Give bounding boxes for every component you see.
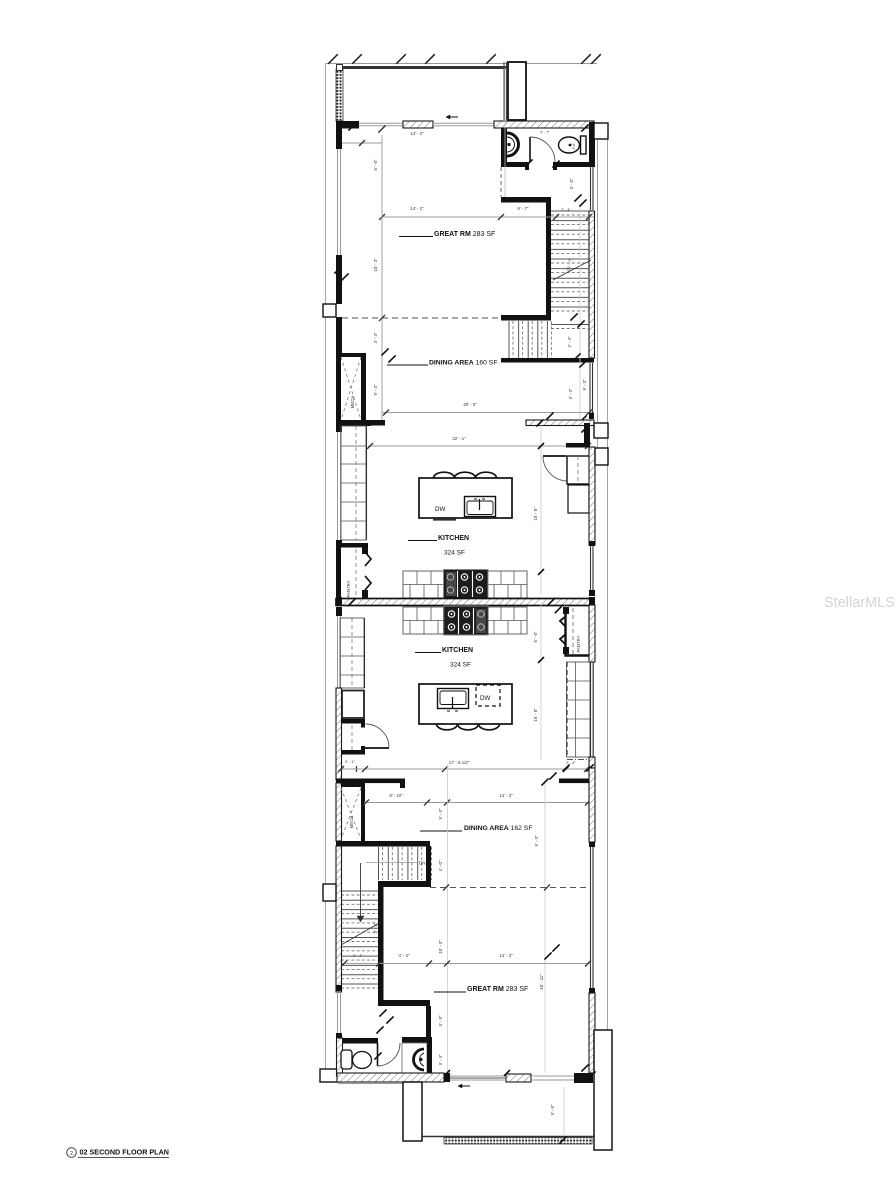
svg-text:2' - 4": 2' - 4" <box>566 761 576 765</box>
svg-text:MECH: MECH <box>350 396 355 409</box>
svg-text:2' - 4": 2' - 4" <box>561 208 571 212</box>
svg-text:3' - 6": 3' - 6" <box>550 1104 555 1115</box>
svg-text:KITCHEN: KITCHEN <box>442 647 473 654</box>
svg-text:15' - 6": 15' - 6" <box>533 708 538 722</box>
svg-text:2'-6": 2'-6" <box>572 142 576 150</box>
svg-text:3' - 0": 3' - 0" <box>569 178 574 189</box>
svg-text:6' - 6": 6' - 6" <box>373 159 378 170</box>
svg-text:9' - 3": 9' - 3" <box>534 835 539 846</box>
svg-text:10' - 3": 10' - 3" <box>438 940 443 954</box>
svg-text:StellarMLS: StellarMLS <box>824 595 895 611</box>
svg-text:22' - 1": 22' - 1" <box>452 436 466 441</box>
svg-text:17' - 8 1/2": 17' - 8 1/2" <box>449 760 470 765</box>
svg-text:3' - 3": 3' - 3" <box>568 388 573 399</box>
svg-text:KITCHEN: KITCHEN <box>438 535 469 542</box>
svg-text:DW: DW <box>435 506 445 513</box>
svg-text:16' - 11": 16' - 11" <box>539 974 544 990</box>
svg-text:02 SECOND FLOOR PLAN: 02 SECOND FLOOR PLAN <box>80 1148 169 1157</box>
svg-text:14' - 2": 14' - 2" <box>499 953 513 958</box>
svg-text:20' - 0": 20' - 0" <box>463 402 477 407</box>
svg-text:324 SF: 324 SF <box>444 550 465 557</box>
svg-text:GREAT RM 283 SF: GREAT RM 283 SF <box>434 231 495 238</box>
svg-text:2' - 4": 2' - 4" <box>567 336 572 347</box>
svg-text:4' - 0": 4' - 0" <box>438 860 443 871</box>
svg-text:3' - 8": 3' - 8" <box>373 922 378 933</box>
svg-text:9' - 3": 9' - 3" <box>438 808 443 819</box>
svg-text:PANTRY: PANTRY <box>576 635 581 652</box>
svg-text:324 SF: 324 SF <box>450 662 471 669</box>
svg-text:DW: DW <box>480 695 490 702</box>
svg-text:5' - 6": 5' - 6" <box>533 631 538 642</box>
svg-text:9' - 3": 9' - 3" <box>373 384 378 395</box>
svg-text:2' - 7": 2' - 7" <box>540 131 550 135</box>
svg-text:14' - 2": 14' - 2" <box>410 206 424 211</box>
svg-text:10' - 3": 10' - 3" <box>373 258 378 272</box>
svg-text:14' - 2": 14' - 2" <box>410 131 424 136</box>
svg-text:3' - 9": 3' - 9" <box>438 1015 443 1026</box>
svg-text:PANTRY: PANTRY <box>346 580 351 597</box>
svg-text:MECH: MECH <box>349 816 354 829</box>
svg-text:6' - 7": 6' - 7" <box>518 206 529 211</box>
svg-text:2' - 4": 2' - 4" <box>353 954 363 958</box>
svg-text:3' - 3": 3' - 3" <box>373 332 378 343</box>
svg-text:9' - 3": 9' - 3" <box>582 379 587 390</box>
svg-text:2: 2 <box>70 1151 73 1157</box>
svg-text:9' - 10": 9' - 10" <box>389 793 403 798</box>
svg-text:3' - 4": 3' - 4" <box>438 1054 443 1065</box>
svg-text:GREAT RM 283 SF: GREAT RM 283 SF <box>467 986 528 993</box>
svg-text:14' - 2": 14' - 2" <box>499 793 513 798</box>
svg-text:4' - 3": 4' - 3" <box>399 953 410 958</box>
svg-text:15' - 6": 15' - 6" <box>533 507 538 521</box>
svg-text:2' - 1": 2' - 1" <box>345 760 355 764</box>
svg-text:DINING AREA 162 SF: DINING AREA 162 SF <box>464 825 533 832</box>
svg-text:DN: DN <box>419 861 426 866</box>
svg-text:DINING AREA 160 SF: DINING AREA 160 SF <box>429 360 498 367</box>
